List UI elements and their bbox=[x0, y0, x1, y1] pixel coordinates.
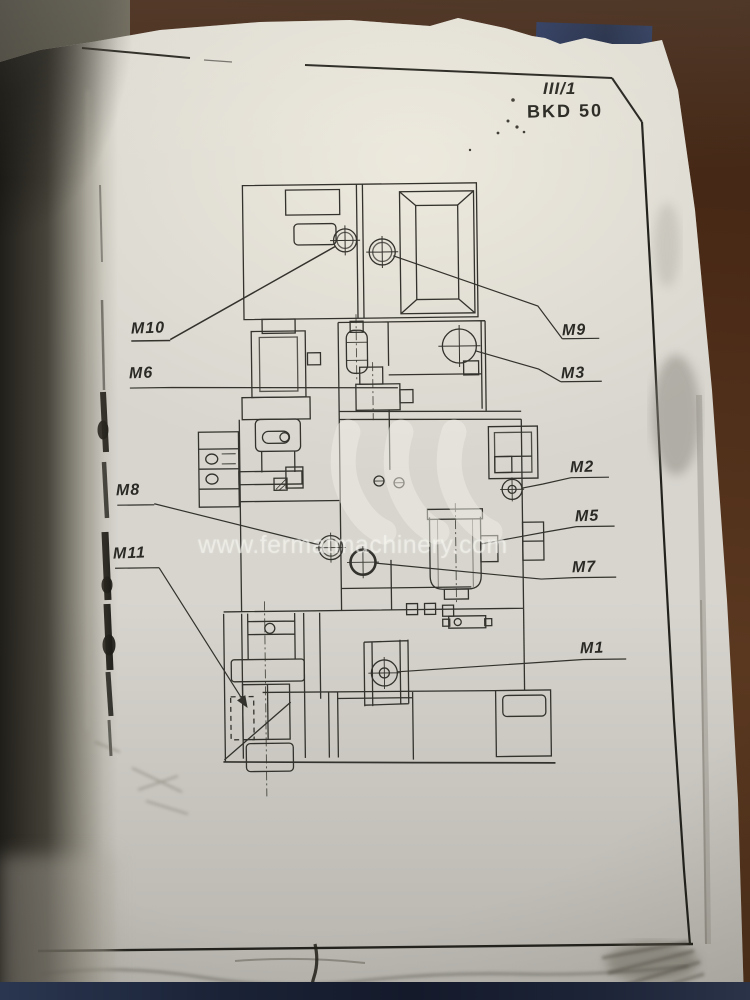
photo-vignette bbox=[0, 0, 750, 1000]
photographed-manual-page: www.fermatmachinery.com III/1 BKD 50 M10… bbox=[0, 0, 750, 1000]
bottom-cover-strip bbox=[0, 982, 750, 1000]
